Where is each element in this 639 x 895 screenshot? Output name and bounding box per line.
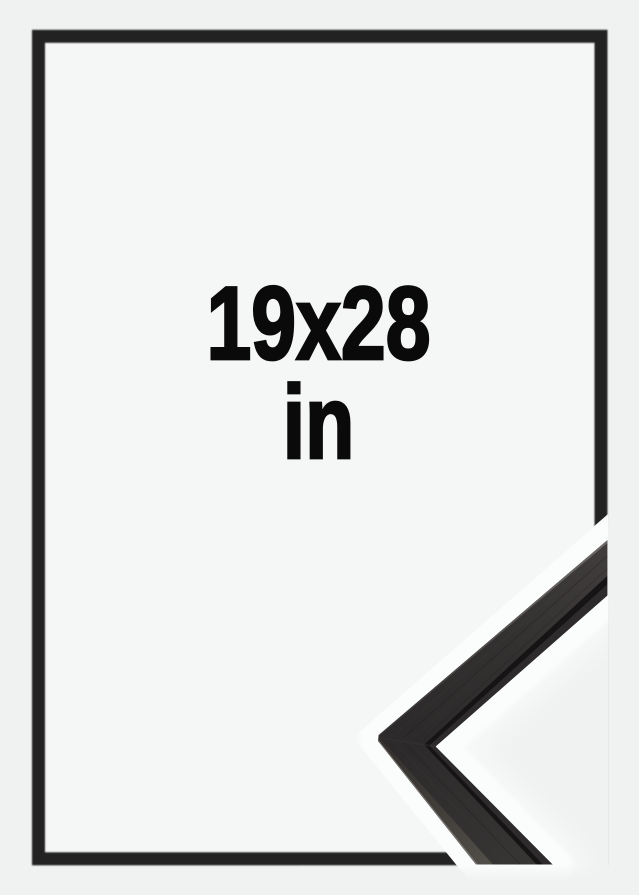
svg-text:in: in [283,364,355,480]
